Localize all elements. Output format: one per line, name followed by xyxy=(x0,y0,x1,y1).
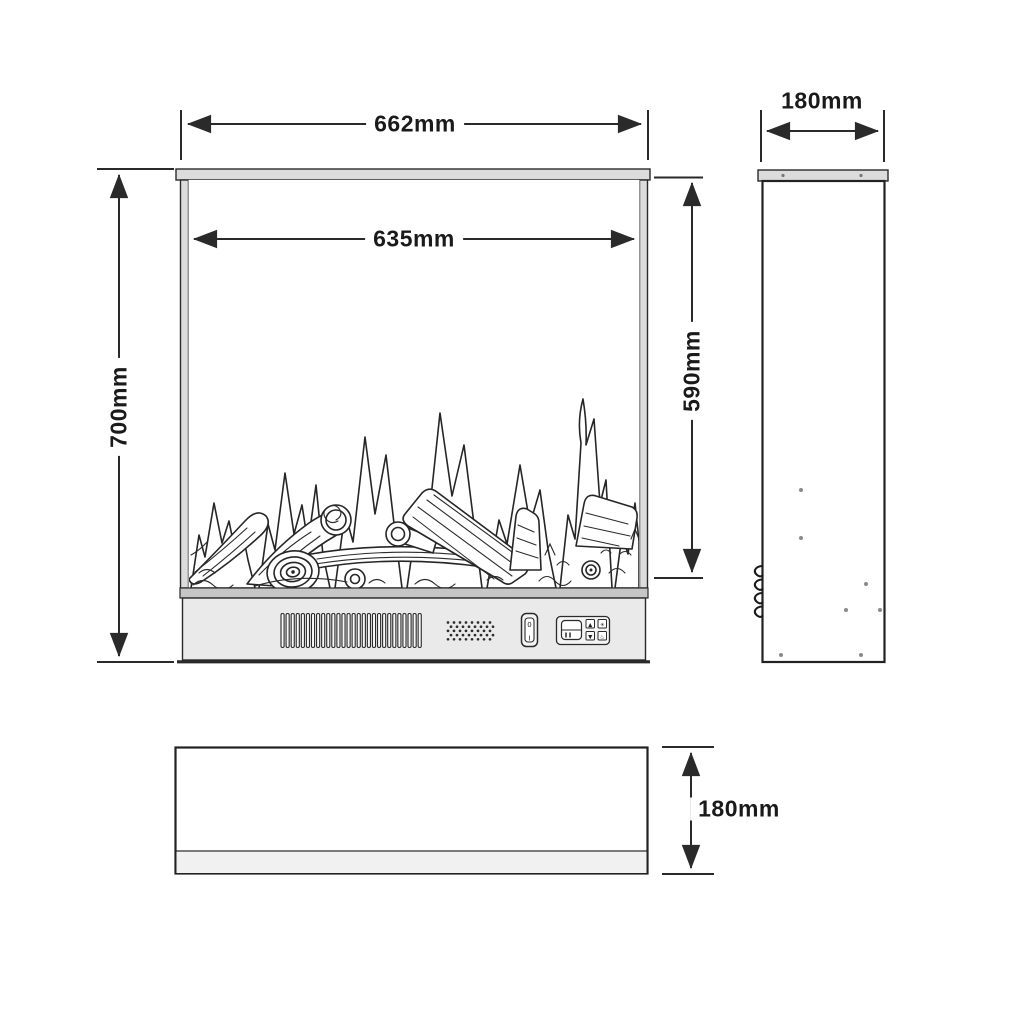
power-switch[interactable]: 0 I xyxy=(522,614,538,647)
side-depth-label: 180mm xyxy=(773,90,871,113)
front-opening-height-label: 590mm xyxy=(681,322,704,420)
mounting-hooks xyxy=(755,566,763,617)
front-overall-height-label: 700mm xyxy=(108,358,131,456)
fireplace-dimension-diagram: 0 I ▲ ✳ ▼ ♨ xyxy=(0,0,1024,1024)
front-opening-width-label: 635mm xyxy=(365,228,463,251)
fan-icon: ✳ xyxy=(600,622,605,629)
bottom-front-strip xyxy=(177,852,647,873)
diagram-linework: 0 I ▲ ✳ ▼ ♨ xyxy=(0,0,1024,1024)
temperature-display xyxy=(562,621,582,640)
control-pad[interactable]: ▲ ✳ ▼ ♨ xyxy=(557,617,610,645)
switch-off-mark: 0 xyxy=(527,621,531,629)
bottom-depth-label: 180mm xyxy=(690,798,788,821)
side-body xyxy=(763,181,885,662)
front-overall-width-label: 662mm xyxy=(366,113,464,136)
top-flange xyxy=(758,170,888,181)
panel-separator xyxy=(180,588,648,598)
bottom-view xyxy=(176,747,715,874)
heat-icon: ♨ xyxy=(600,635,605,641)
dimension-side-depth xyxy=(761,110,884,162)
switch-on-mark: I xyxy=(528,635,530,643)
side-view xyxy=(755,110,888,662)
